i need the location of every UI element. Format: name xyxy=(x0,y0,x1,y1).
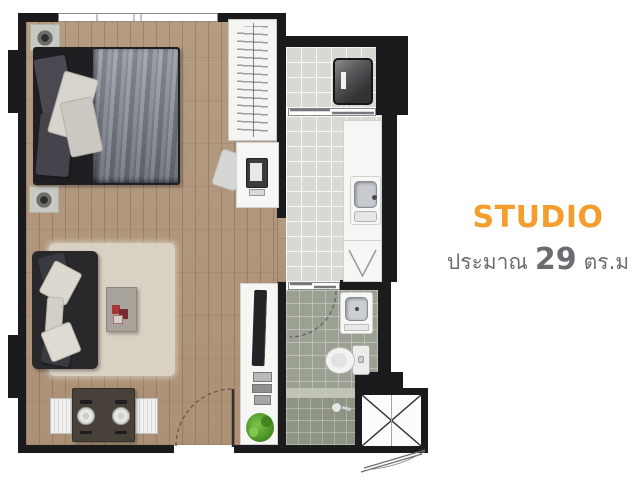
toilet-bowl xyxy=(325,347,355,374)
console-books-3 xyxy=(254,395,271,405)
caption: STUDIO ประมาณ 29 ตร.ม xyxy=(440,203,636,276)
wardrobe-clothes xyxy=(237,26,267,134)
floorplan-image: STUDIO ประมาณ 29 ตร.ม xyxy=(0,0,640,480)
plate-right xyxy=(112,407,130,425)
decor-red-3 xyxy=(113,315,123,324)
shower-head-icon xyxy=(331,402,342,413)
plant xyxy=(246,413,274,442)
dining-chair-right xyxy=(135,398,158,434)
washing-machine xyxy=(333,58,373,105)
wall-right-bath xyxy=(378,282,391,375)
wall-bottom-left xyxy=(18,445,174,453)
console-books-1 xyxy=(253,372,272,382)
shaft-access-door-arc xyxy=(366,451,425,470)
toilet-button xyxy=(358,356,364,363)
cooktop xyxy=(343,240,382,282)
kitchen-sink-drainer xyxy=(354,211,377,222)
wall-divider-lower xyxy=(277,282,286,453)
wall-right-kitchen xyxy=(382,115,397,282)
tv xyxy=(252,290,268,366)
cutlery-right-bottom xyxy=(115,431,127,434)
speaker-bottom-icon xyxy=(32,188,56,212)
plate-left xyxy=(77,407,95,425)
area-suffix: ตร.ม xyxy=(584,251,629,274)
plan-area-label: ประมาณ 29 ตร.ม xyxy=(440,243,636,276)
washing-machine-panel xyxy=(341,72,346,89)
area-value: 29 xyxy=(535,243,577,276)
area-prefix: ประมาณ xyxy=(447,251,528,274)
bed-duvet xyxy=(93,49,178,183)
computer-keyboard xyxy=(249,189,265,196)
shaft-inner xyxy=(362,395,421,446)
washbasin-shelf xyxy=(344,324,369,331)
column-left-upper xyxy=(8,50,26,113)
balcony-sliding-door xyxy=(288,108,376,116)
shower-zone xyxy=(286,398,355,445)
wardrobe xyxy=(228,19,277,141)
computer-screen xyxy=(250,163,262,181)
shower-threshold xyxy=(286,388,355,398)
cutlery-left-bottom xyxy=(80,431,92,434)
cutlery-left-top xyxy=(80,400,92,404)
column-right-top xyxy=(376,36,408,115)
dining-chair-left xyxy=(50,398,72,434)
kitchen-faucet-icon xyxy=(372,195,377,200)
wall-bottom-bath xyxy=(283,445,362,453)
shaft-access-door-lines xyxy=(361,450,425,472)
bathroom-sliding-door xyxy=(288,282,340,290)
column-left-lower xyxy=(8,335,26,398)
washbasin-faucet-icon xyxy=(355,307,359,311)
plan-title: STUDIO xyxy=(440,203,636,233)
cutlery-right-top xyxy=(115,400,127,404)
console-books-2 xyxy=(252,384,272,393)
window-band xyxy=(58,13,218,22)
